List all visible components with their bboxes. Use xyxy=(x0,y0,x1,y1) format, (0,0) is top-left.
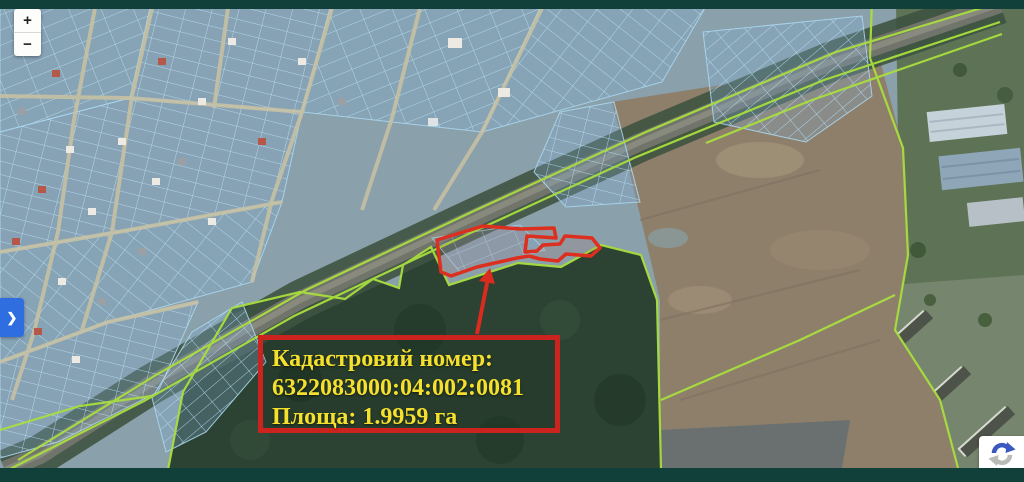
cadastral-label: Кадастровий номер: xyxy=(272,345,546,374)
chevron-right-icon: ❯ xyxy=(7,310,18,326)
cadastral-number: 6322083000:04:002:0081 xyxy=(272,374,546,403)
expand-panel-button[interactable]: ❯ xyxy=(0,298,24,337)
parcel-area: Площа: 1.9959 га xyxy=(272,403,546,432)
zoom-in-icon: + xyxy=(23,12,32,29)
top-letterbox-bar xyxy=(0,0,1024,9)
zoom-out-icon: − xyxy=(23,36,32,53)
zoom-in-button[interactable]: + xyxy=(14,9,41,32)
cadastral-map-viewport: Кадастровий номер: 6322083000:04:002:008… xyxy=(0,0,1024,482)
refresh-button[interactable] xyxy=(979,436,1024,472)
parcel-annotation-box: Кадастровий номер: 6322083000:04:002:008… xyxy=(258,335,560,433)
bottom-letterbox-bar xyxy=(0,468,1024,482)
refresh-icon xyxy=(986,440,1018,468)
zoom-out-button[interactable]: − xyxy=(14,33,41,56)
zoom-control: + − xyxy=(14,9,41,56)
